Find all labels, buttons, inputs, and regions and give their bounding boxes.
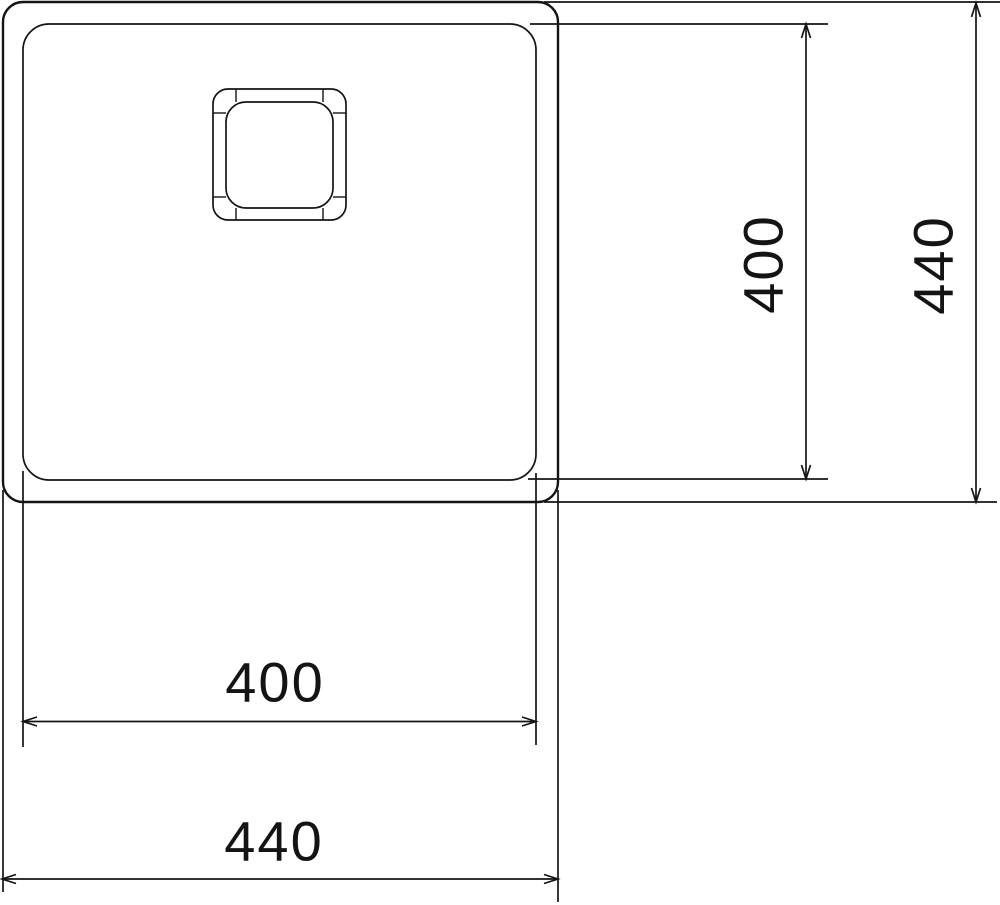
drawing-svg: 400 440 400 440 <box>0 0 1000 905</box>
sink-dimension-drawing: 400 440 400 440 <box>0 0 1000 905</box>
dimension-label-bowl-width: 400 <box>225 651 324 714</box>
dimension-label-bowl-depth: 400 <box>732 214 795 313</box>
sink-bowl-edge <box>23 24 536 480</box>
drain-inner-cover <box>226 102 333 208</box>
dimension-arrowheads <box>2 3 981 884</box>
dimension-label-overall-width: 440 <box>224 810 323 873</box>
drawing-linework <box>2 2 1000 902</box>
drain-outer-frame <box>213 89 346 220</box>
dimension-lines <box>2 3 976 879</box>
drain-corner-ticks <box>213 89 346 220</box>
dimension-label-overall-depth: 440 <box>902 215 965 314</box>
dimension-labels: 400 440 400 440 <box>224 214 964 872</box>
extension-lines <box>3 2 1000 902</box>
sink-outer-rim <box>3 2 558 502</box>
